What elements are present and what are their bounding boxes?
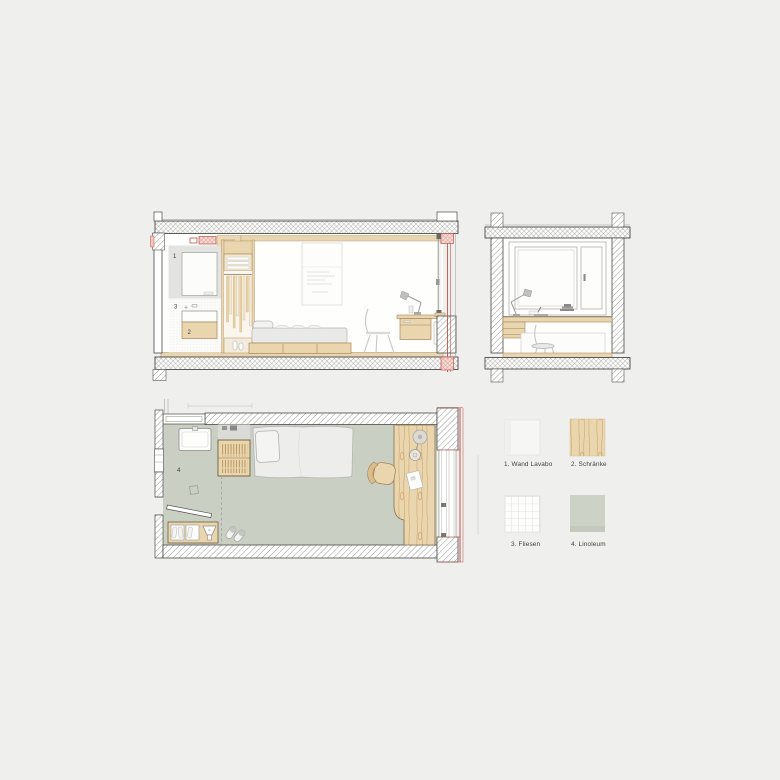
legend-swatch-linoleum xyxy=(570,495,605,532)
material-legend: 1. Wand Lavabo 2. Schränke 3. Fliesen 4.… xyxy=(504,419,607,548)
pocket-door-leaf xyxy=(166,417,202,422)
left-wall-seg3 xyxy=(155,515,163,558)
wall-stub-bottom-right xyxy=(612,369,624,382)
wall-stub-top-right xyxy=(612,213,624,227)
left-wall-lintel xyxy=(153,233,165,250)
drawing-sheet: 1 3 2 xyxy=(0,0,780,780)
washbasin xyxy=(182,311,217,322)
ceiling-wood-strip xyxy=(241,236,443,242)
left-wall xyxy=(154,233,162,353)
floor-slab xyxy=(155,357,458,370)
wardrobe-section xyxy=(222,240,255,353)
shoe-cabinet-plan xyxy=(168,522,218,543)
shelf-item xyxy=(204,292,213,295)
left-wall-seg1 xyxy=(155,410,163,449)
wardrobe-top-shelf xyxy=(218,425,250,441)
door-jambs xyxy=(155,497,163,515)
window-wall-plan xyxy=(437,408,478,563)
dimension-ticks xyxy=(188,404,252,409)
ceiling-slab xyxy=(155,221,458,234)
pinboard xyxy=(302,243,342,305)
wall-stub-top-left xyxy=(491,213,503,227)
red-detail-hatch xyxy=(199,237,216,245)
wardrobe-plan xyxy=(218,440,250,476)
legend-label-schraenke: 2. Schränke xyxy=(571,461,607,468)
wall-stub-bottom-left xyxy=(153,370,166,381)
bottom-wall xyxy=(163,545,437,558)
ceiling-slab xyxy=(485,227,630,238)
legend-label-wand-lavabo: 1. Wand Lavabo xyxy=(504,461,553,468)
washbasin-plan xyxy=(179,427,211,451)
red-jamb-detail xyxy=(151,236,155,247)
bed-plan xyxy=(253,426,353,478)
section-cross xyxy=(485,213,630,382)
parapet xyxy=(437,316,456,353)
floor-slab xyxy=(485,358,630,370)
chair-plan xyxy=(368,461,397,485)
floor-finish xyxy=(503,353,612,358)
left-wall-seg2 xyxy=(155,472,163,497)
top-wall xyxy=(205,413,437,425)
legend-label-linoleum: 4. Linoleum xyxy=(571,541,606,548)
legend-label-fliesen: 3. Fliesen xyxy=(511,541,541,548)
mirror xyxy=(182,253,217,296)
wall-stub-top-right xyxy=(437,212,457,221)
right-wall xyxy=(612,238,624,353)
reference-lines xyxy=(165,399,169,414)
wall-stub-bottom-left xyxy=(491,369,503,382)
legend-swatch-wand-lavabo xyxy=(505,420,540,455)
architectural-drawing: 1 3 2 xyxy=(0,0,780,780)
floor-plan: 4 xyxy=(155,399,479,562)
wall-stub-top-left xyxy=(154,212,162,221)
section-longitudinal: 1 3 2 xyxy=(151,212,459,381)
left-wall-shaft xyxy=(155,449,164,472)
legend-swatch-schraenke xyxy=(570,419,605,456)
legend-swatch-fliesen xyxy=(505,496,540,532)
window-cross xyxy=(509,242,606,315)
left-wall xyxy=(491,238,503,353)
window-wall-section xyxy=(435,233,456,372)
